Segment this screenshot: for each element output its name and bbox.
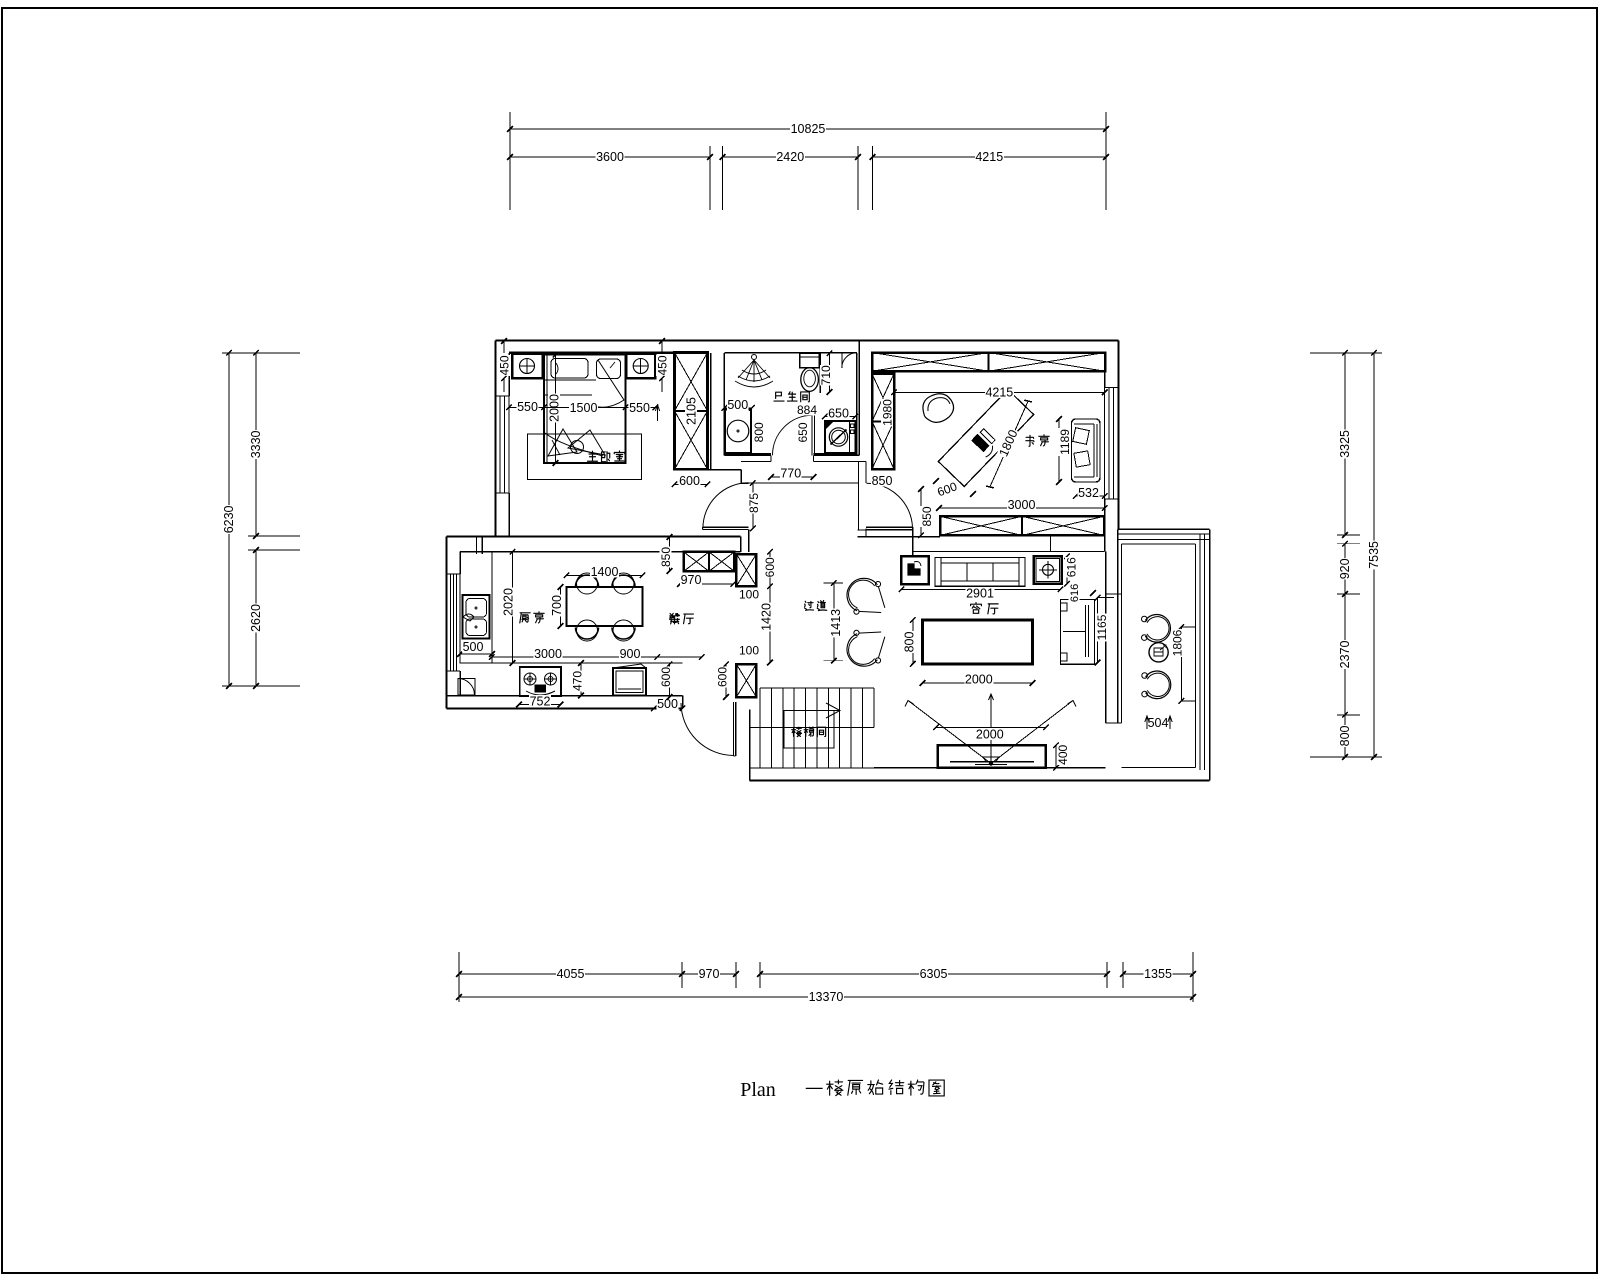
- svg-text:2020: 2020: [502, 588, 516, 616]
- svg-text:550: 550: [629, 401, 650, 415]
- svg-text:970: 970: [681, 573, 702, 587]
- svg-text:1165: 1165: [1095, 614, 1109, 640]
- svg-text:3325: 3325: [1338, 430, 1352, 458]
- svg-text:2000: 2000: [965, 673, 993, 687]
- svg-text:3000: 3000: [534, 647, 562, 661]
- svg-text:504: 504: [1148, 716, 1169, 730]
- svg-text:3000: 3000: [1008, 498, 1036, 512]
- svg-text:400: 400: [1056, 744, 1070, 764]
- svg-text:970: 970: [699, 967, 720, 981]
- svg-text:1500: 1500: [570, 401, 598, 415]
- svg-text:500: 500: [463, 640, 484, 654]
- svg-text:600: 600: [763, 557, 777, 577]
- svg-text:600: 600: [659, 667, 673, 687]
- svg-text:100: 100: [739, 643, 759, 657]
- svg-text:1189: 1189: [1058, 429, 1072, 455]
- svg-text:600: 600: [679, 474, 700, 488]
- svg-text:470: 470: [570, 671, 584, 691]
- svg-text:6230: 6230: [222, 505, 236, 533]
- svg-text:100: 100: [739, 588, 759, 602]
- svg-text:770: 770: [780, 466, 801, 480]
- svg-text:616: 616: [1064, 557, 1078, 577]
- svg-text:2620: 2620: [249, 604, 263, 632]
- svg-text:4215: 4215: [985, 385, 1013, 399]
- svg-text:650: 650: [796, 422, 810, 442]
- svg-text:4215: 4215: [975, 150, 1003, 164]
- svg-text:850: 850: [920, 506, 934, 526]
- svg-text:1420: 1420: [760, 603, 774, 631]
- svg-text:10825: 10825: [791, 122, 826, 136]
- svg-text:2105: 2105: [685, 397, 699, 425]
- svg-text:710: 710: [819, 365, 833, 385]
- svg-text:450: 450: [655, 355, 669, 375]
- svg-text:4055: 4055: [557, 967, 585, 981]
- svg-text:500: 500: [727, 398, 748, 412]
- svg-text:800: 800: [1338, 725, 1352, 746]
- svg-text:600: 600: [715, 667, 729, 687]
- svg-text:1400: 1400: [591, 565, 619, 579]
- svg-text:Plan: Plan: [740, 1079, 776, 1101]
- svg-text:850: 850: [872, 474, 893, 488]
- svg-text:550: 550: [517, 400, 538, 414]
- svg-text:532: 532: [1078, 486, 1099, 500]
- svg-text:900: 900: [620, 647, 641, 661]
- svg-text:450: 450: [497, 355, 511, 375]
- svg-text:3600: 3600: [596, 150, 624, 164]
- svg-text:850: 850: [659, 547, 673, 567]
- svg-text:700: 700: [550, 595, 564, 616]
- svg-text:650: 650: [828, 406, 849, 420]
- svg-text:920: 920: [1338, 558, 1352, 579]
- svg-text:2000: 2000: [548, 394, 562, 422]
- svg-text:2420: 2420: [776, 150, 804, 164]
- svg-text:884: 884: [797, 403, 817, 417]
- svg-text:1413: 1413: [829, 609, 843, 637]
- svg-text:7535: 7535: [1367, 541, 1381, 569]
- svg-text:1355: 1355: [1144, 967, 1172, 981]
- svg-text:2000: 2000: [976, 727, 1004, 741]
- svg-text:875: 875: [747, 493, 761, 513]
- svg-text:6305: 6305: [920, 967, 948, 981]
- svg-text:800: 800: [902, 632, 916, 653]
- svg-text:800: 800: [752, 422, 766, 442]
- svg-text:752: 752: [530, 694, 551, 708]
- svg-text:2901: 2901: [966, 587, 994, 601]
- svg-text:1980: 1980: [880, 399, 894, 426]
- svg-text:13370: 13370: [809, 990, 844, 1004]
- svg-text:2370: 2370: [1338, 641, 1352, 669]
- svg-text:616: 616: [1069, 584, 1081, 602]
- svg-text:1806: 1806: [1170, 629, 1184, 656]
- svg-text:3330: 3330: [249, 430, 263, 458]
